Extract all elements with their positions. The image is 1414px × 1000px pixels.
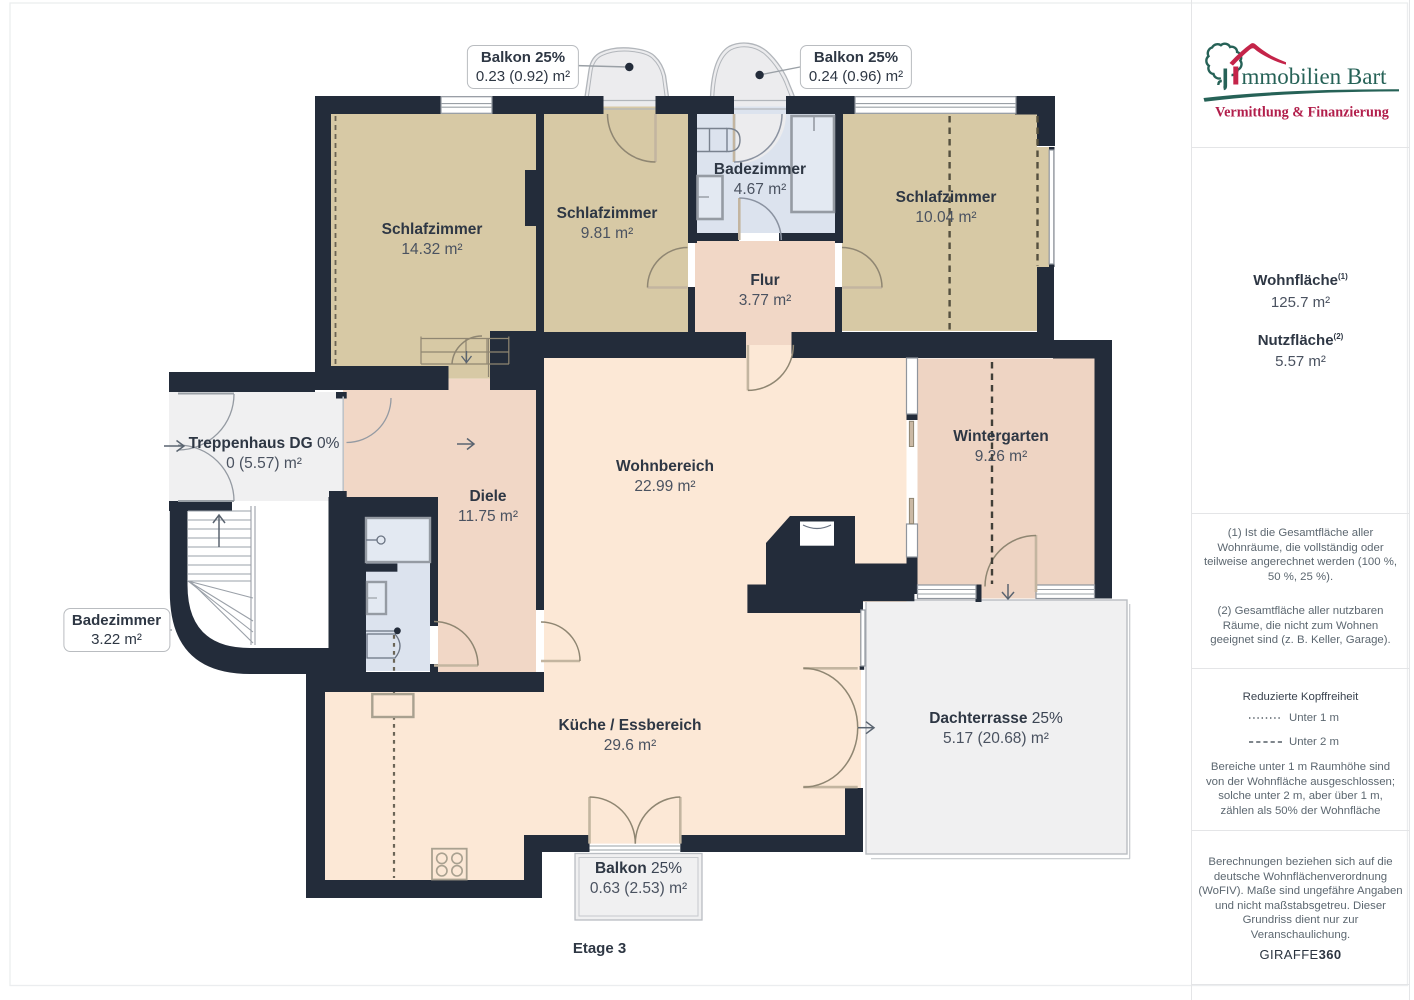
svg-text:Vermittlung & Finanzierung: Vermittlung & Finanzierung (1215, 105, 1389, 121)
svg-text:mmobilien Bart: mmobilien Bart (1242, 64, 1388, 89)
